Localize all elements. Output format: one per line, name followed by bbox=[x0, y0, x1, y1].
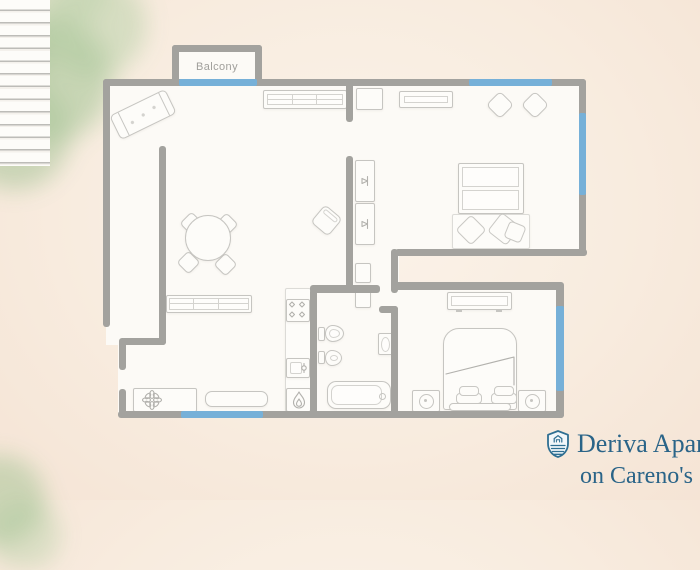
wall bbox=[395, 282, 563, 290]
pillow-icon bbox=[456, 386, 482, 404]
stove-icon bbox=[286, 299, 310, 322]
counter-icon bbox=[205, 391, 268, 407]
balcony-label: Balcony bbox=[177, 61, 257, 73]
dining-table-icon bbox=[185, 215, 231, 261]
wall bbox=[119, 389, 126, 418]
wall bbox=[346, 79, 353, 122]
window bbox=[469, 79, 552, 86]
kitchen-sink-icon bbox=[286, 358, 310, 378]
balcony-door-window bbox=[179, 79, 257, 86]
wall bbox=[172, 45, 262, 52]
side-table-icon bbox=[356, 88, 383, 110]
wall bbox=[346, 156, 353, 293]
sideboard-icon bbox=[166, 295, 252, 313]
bathtub-icon bbox=[327, 381, 391, 409]
wall bbox=[121, 338, 166, 345]
flame-icon bbox=[291, 391, 307, 409]
dresser-icon bbox=[447, 292, 512, 310]
faucet-icon bbox=[300, 363, 308, 373]
bed-icon bbox=[458, 163, 524, 214]
stairs-icon bbox=[0, 0, 50, 166]
wall bbox=[159, 146, 166, 345]
wall bbox=[310, 289, 317, 418]
wall bbox=[119, 338, 126, 370]
brand-title-line1: Deriva Apar bbox=[577, 431, 700, 457]
pillow-icon bbox=[491, 386, 517, 404]
toilet-icon bbox=[318, 327, 325, 341]
burner-icons bbox=[287, 300, 308, 320]
bed-footboard bbox=[449, 403, 511, 411]
window bbox=[181, 411, 263, 418]
window bbox=[556, 306, 564, 391]
brand-title-line2: on Careno's bbox=[580, 464, 700, 488]
nightstand-lamp-icon bbox=[412, 390, 440, 412]
floor-stairwell bbox=[106, 250, 166, 345]
tv-cabinet-icon bbox=[263, 90, 347, 109]
shield-crest-icon bbox=[546, 430, 570, 458]
wall bbox=[310, 285, 380, 293]
nightstand-lamp-icon bbox=[518, 390, 546, 412]
wardrobe-hanger-icon bbox=[355, 203, 375, 245]
wardrobe-hanger-icon bbox=[355, 160, 375, 202]
window bbox=[579, 113, 586, 195]
wall bbox=[391, 306, 398, 418]
tv-panel-icon bbox=[399, 91, 453, 108]
boiler-flame-icon bbox=[286, 388, 311, 412]
hall-cabinet-icon bbox=[355, 263, 371, 283]
bidet-icon bbox=[318, 351, 325, 364]
flower-icon bbox=[141, 389, 163, 411]
wall bbox=[395, 249, 587, 256]
brand-logo: Deriva Apar on Careno's bbox=[546, 430, 700, 488]
wall bbox=[103, 79, 110, 327]
flower-cabinet-icon bbox=[133, 388, 197, 412]
apartment-floor-plan: Balcony bbox=[0, 0, 700, 500]
